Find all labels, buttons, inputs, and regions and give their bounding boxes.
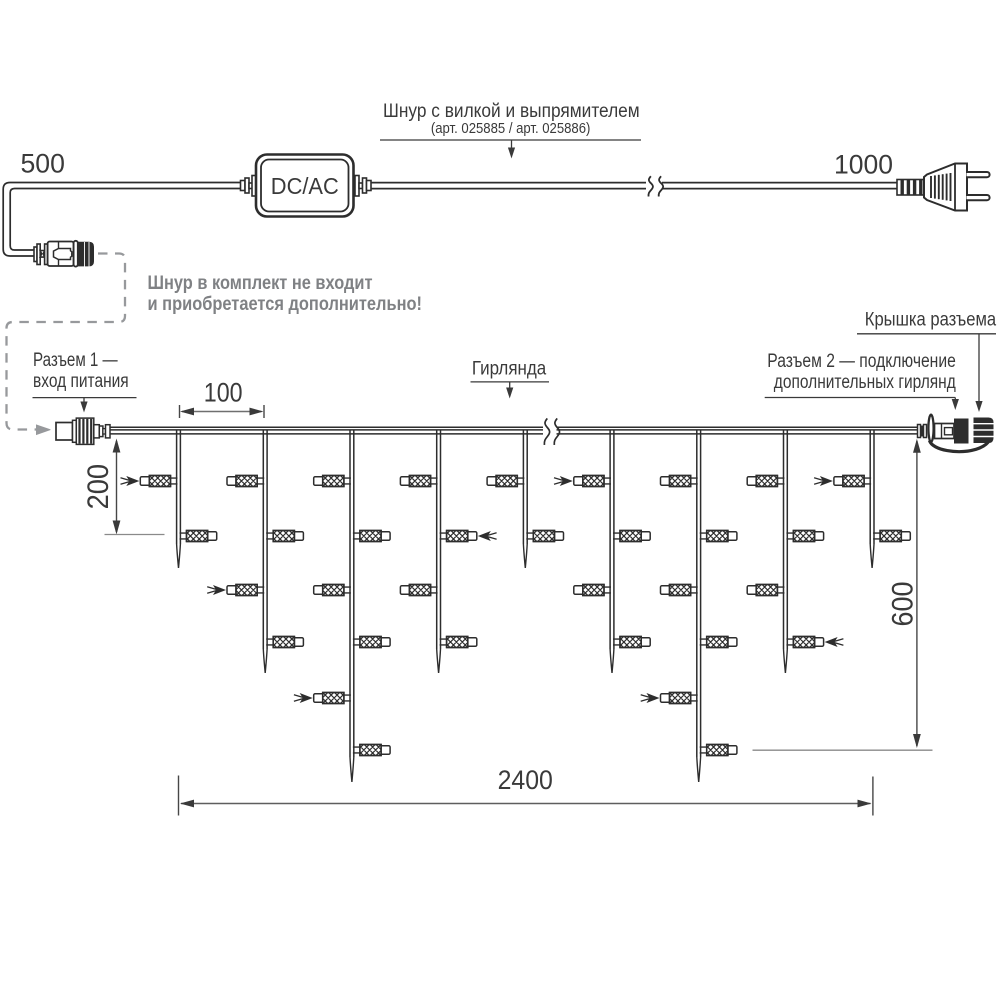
svg-text:100: 100 xyxy=(204,378,243,408)
svg-text:Разъем 2 — подключение: Разъем 2 — подключение xyxy=(767,351,956,372)
svg-text:вход питания: вход питания xyxy=(33,371,129,392)
svg-text:Шнур с вилкой и выпрямителем: Шнур с вилкой и выпрямителем xyxy=(383,101,640,122)
svg-text:200: 200 xyxy=(82,464,115,509)
svg-text:Разъем 1 —: Разъем 1 — xyxy=(33,350,118,371)
svg-text:Шнур в комплект не входит: Шнур в комплект не входит xyxy=(148,273,373,294)
svg-text:Гирлянда: Гирлянда xyxy=(472,359,547,380)
svg-text:1000: 1000 xyxy=(834,150,893,180)
svg-text:500: 500 xyxy=(21,148,65,178)
svg-text:дополнительных гирлянд: дополнительных гирлянд xyxy=(774,372,956,393)
svg-text:2400: 2400 xyxy=(498,765,553,795)
svg-text:DC/AC: DC/AC xyxy=(271,173,339,199)
svg-text:и приобретается дополнительно!: и приобретается дополнительно! xyxy=(148,294,423,315)
svg-text:(арт. 025885 / арт. 025886): (арт. 025885 / арт. 025886) xyxy=(431,121,591,137)
svg-text:600: 600 xyxy=(887,582,920,627)
svg-text:Крышка разъема: Крышка разъема xyxy=(865,310,997,331)
